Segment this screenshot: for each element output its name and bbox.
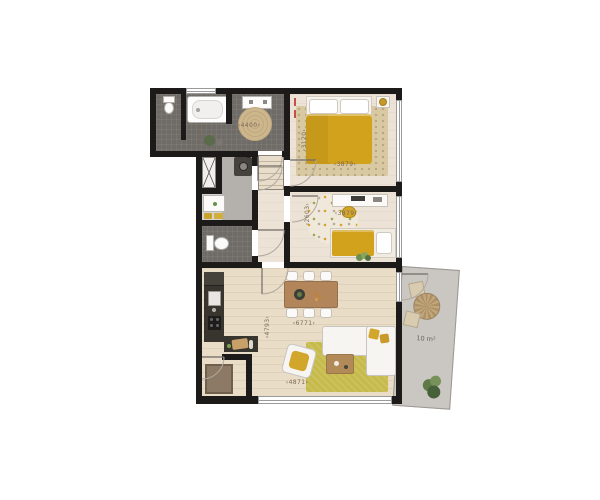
shaft-x-mark bbox=[203, 158, 215, 187]
dim-bathroom-width: 4400 bbox=[229, 120, 269, 130]
door-swing-overlay bbox=[0, 0, 600, 500]
dim-bedroom-middle-width: 3879 bbox=[326, 208, 366, 218]
dim-bedroom-top-width: 3879 bbox=[325, 159, 365, 169]
door-arc bbox=[262, 268, 288, 294]
door-arc bbox=[202, 357, 224, 379]
dim-bedroom-middle-depth: 2603 bbox=[302, 199, 312, 229]
dim-bedroom-top-depth: 3120 bbox=[299, 125, 309, 155]
dim-living-depth: 4793 bbox=[262, 312, 272, 342]
door-arc bbox=[290, 160, 316, 186]
door-arc bbox=[258, 157, 282, 181]
door-arc bbox=[402, 274, 428, 300]
dim-living-width: 6771 bbox=[284, 318, 324, 328]
dim-living-entry: 4871 bbox=[277, 377, 317, 387]
floor-plan: 10 m² bbox=[0, 0, 600, 500]
dim-bathroom-depth: 1970 bbox=[195, 118, 205, 148]
washer-hose bbox=[239, 154, 252, 157]
door-arc bbox=[258, 230, 284, 256]
